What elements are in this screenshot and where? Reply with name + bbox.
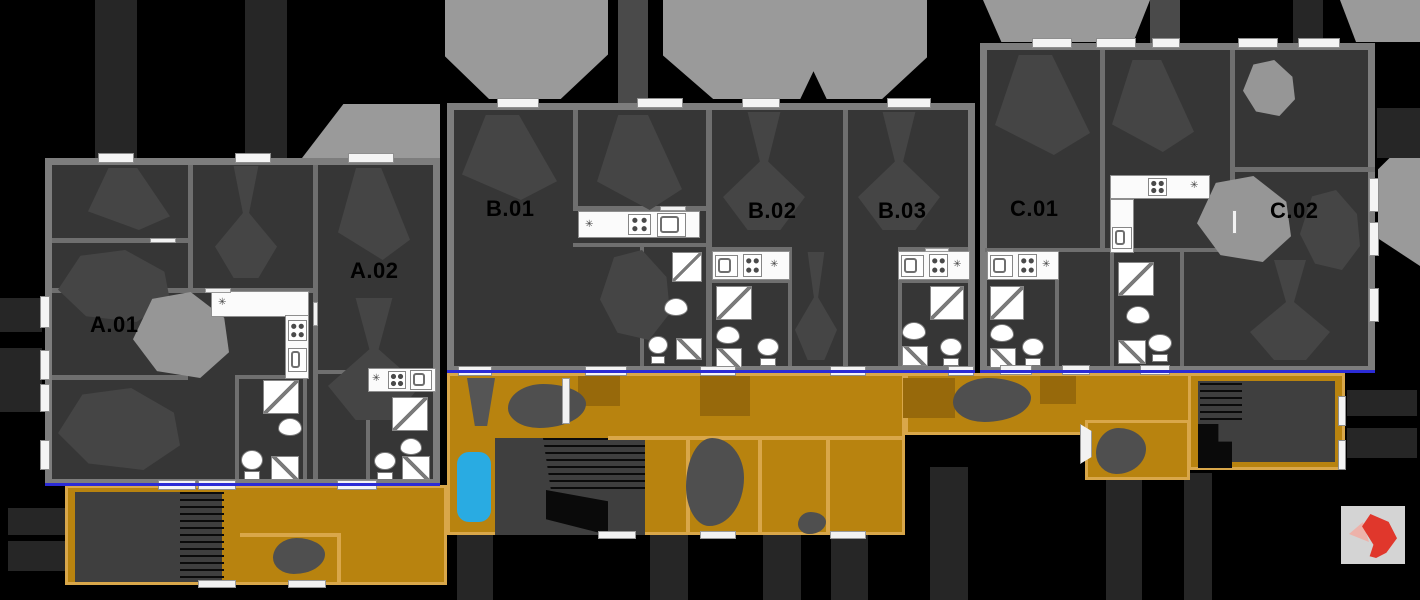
partition-wall [188, 165, 193, 290]
washing-machine-icon [1118, 340, 1146, 364]
partition-wall [1180, 252, 1184, 366]
door-opening [925, 248, 949, 252]
door-opening [150, 238, 176, 243]
window [1238, 38, 1278, 48]
door-opening [288, 580, 326, 588]
window [1152, 38, 1180, 48]
threshold-line [980, 370, 1375, 373]
threshold-line [447, 370, 975, 373]
ceiling-light-icon: ✳ [953, 260, 961, 270]
door-opening [700, 531, 736, 539]
shadow-bar [1347, 428, 1417, 458]
window [497, 98, 539, 108]
unit-label-b01[interactable]: B.01 [486, 196, 534, 222]
door-opening [313, 302, 318, 326]
deck-wall [758, 436, 762, 535]
shower-icon [716, 286, 752, 320]
unit-label-a02[interactable]: A.02 [350, 258, 398, 284]
shadow-bar [1106, 480, 1142, 600]
logo[interactable] [1341, 506, 1405, 564]
window [348, 153, 394, 163]
threshold-line [45, 483, 440, 486]
washing-machine-icon [716, 348, 742, 368]
deck-wall [337, 533, 341, 585]
ceiling-light-icon: ✳ [770, 260, 778, 270]
washbasin-icon [1126, 306, 1150, 324]
kitchen-sink-icon [410, 370, 432, 390]
washbasin-icon [716, 326, 740, 344]
shower-icon [263, 380, 299, 414]
window [1338, 396, 1346, 426]
door-leaf [562, 378, 570, 424]
window [1369, 222, 1379, 256]
light-wedge [663, 0, 927, 99]
partition-wall [1100, 50, 1105, 250]
unit-label-b03[interactable]: B.03 [878, 198, 926, 224]
shadow-bar [650, 535, 688, 600]
toilet-icon [940, 338, 962, 366]
deck-wall [608, 436, 905, 440]
shadow-bar [1377, 108, 1420, 158]
partition-wall [1232, 167, 1375, 172]
ceiling-light-icon: ✳ [218, 298, 226, 308]
kitchen-sink-icon [901, 255, 924, 277]
washing-machine-icon [676, 338, 702, 360]
unit-label-c02[interactable]: C.02 [1270, 198, 1318, 224]
washbasin-icon [278, 418, 302, 436]
toilet-icon [1022, 338, 1044, 366]
partition-wall [303, 375, 307, 479]
window [1338, 440, 1346, 470]
ceiling-light-icon: ✳ [585, 220, 593, 230]
window [742, 98, 780, 108]
window [235, 153, 271, 163]
toilet-icon [1148, 334, 1172, 362]
deck-shadow-patch [700, 376, 750, 416]
window [40, 296, 50, 328]
partition-wall [843, 110, 848, 366]
unit-label-b02[interactable]: B.02 [748, 198, 796, 224]
washbasin-icon [400, 438, 422, 455]
unit-label-a01[interactable]: A.01 [90, 312, 138, 338]
shadow-bar [0, 348, 42, 412]
window [40, 440, 50, 470]
partition-wall [712, 280, 788, 283]
deck-wall [826, 436, 830, 535]
partition-wall [898, 280, 968, 283]
kitchen-sink-icon [1112, 227, 1132, 249]
deck-wall [240, 533, 340, 537]
stove-hob-icon [929, 254, 948, 277]
door-opening [598, 531, 636, 539]
door-opening [198, 580, 236, 588]
partition-wall [52, 375, 188, 380]
partition-wall [706, 110, 712, 366]
shadow-bar [763, 535, 801, 600]
shadow-bar [0, 298, 42, 332]
shadow-bar [1347, 390, 1417, 416]
washing-machine-icon [902, 346, 928, 366]
light-wedge [302, 104, 440, 158]
washbasin-icon [664, 298, 688, 316]
light-wedge [1340, 0, 1420, 42]
shadow-bar [245, 0, 287, 160]
window [1369, 178, 1379, 212]
toilet-icon [648, 336, 668, 364]
window [1298, 38, 1340, 48]
stove-hob-icon [743, 254, 762, 277]
toilet-icon [374, 452, 396, 480]
stairs-hatch [180, 492, 224, 582]
door-opening [1232, 210, 1237, 234]
shower-icon [930, 286, 964, 320]
shadow-bar [1184, 473, 1212, 600]
pool [457, 452, 491, 522]
unit-label-c01[interactable]: C.01 [1010, 196, 1058, 222]
deck-shadow-patch [903, 378, 955, 418]
window [40, 350, 50, 380]
ceiling-light-icon: ✳ [1190, 181, 1198, 191]
shower-icon [672, 252, 702, 282]
shadow-bar [95, 0, 137, 160]
partition-wall [235, 375, 239, 479]
stove-hob-icon [1018, 254, 1037, 277]
deck-shadow-patch [1040, 376, 1076, 404]
washing-machine-icon [402, 456, 430, 480]
partition-wall [573, 110, 578, 208]
door-opening [660, 206, 686, 211]
stove-hob-icon [1148, 178, 1167, 196]
stove-hob-icon [628, 214, 651, 235]
ceiling-light-icon: ✳ [372, 374, 380, 384]
stairs-hatch [1200, 383, 1242, 423]
kitchen-sink-icon [288, 348, 307, 372]
door-opening [830, 531, 866, 539]
window [40, 384, 50, 412]
window [887, 98, 931, 108]
window [637, 98, 683, 108]
partition-wall [1110, 252, 1114, 366]
window [1369, 288, 1379, 322]
shadow-bar [8, 508, 66, 535]
washing-machine-icon [271, 456, 299, 480]
stove-hob-icon [288, 320, 307, 341]
shower-icon [1118, 262, 1154, 296]
washbasin-icon [902, 322, 926, 340]
kitchen-sink-icon [990, 255, 1013, 277]
stove-hob-icon [388, 371, 406, 389]
shower-icon [392, 397, 428, 431]
toilet-icon [757, 338, 779, 366]
window [1096, 38, 1136, 48]
kitchen-sink-icon [657, 213, 686, 237]
ceiling-light-icon: ✳ [1042, 260, 1050, 270]
floor-plan-canvas: ✳ ✳ ✳ ✳ ✳ ✳ ✳ [0, 0, 1420, 600]
washbasin-icon [990, 324, 1014, 342]
kitchen-sink-icon [715, 255, 738, 277]
light-wedge [445, 0, 608, 99]
shadow-bar [930, 467, 968, 600]
shower-icon [990, 286, 1024, 320]
shadow-bar [618, 0, 648, 103]
shadow-bar [8, 541, 66, 571]
shadow-bar [457, 535, 493, 600]
toilet-icon [241, 450, 263, 480]
shadow-bar [831, 535, 868, 600]
stairs-hatch [543, 438, 645, 492]
light-wedge [983, 0, 1150, 42]
door-opening [205, 288, 231, 293]
window [98, 153, 134, 163]
window [1032, 38, 1072, 48]
